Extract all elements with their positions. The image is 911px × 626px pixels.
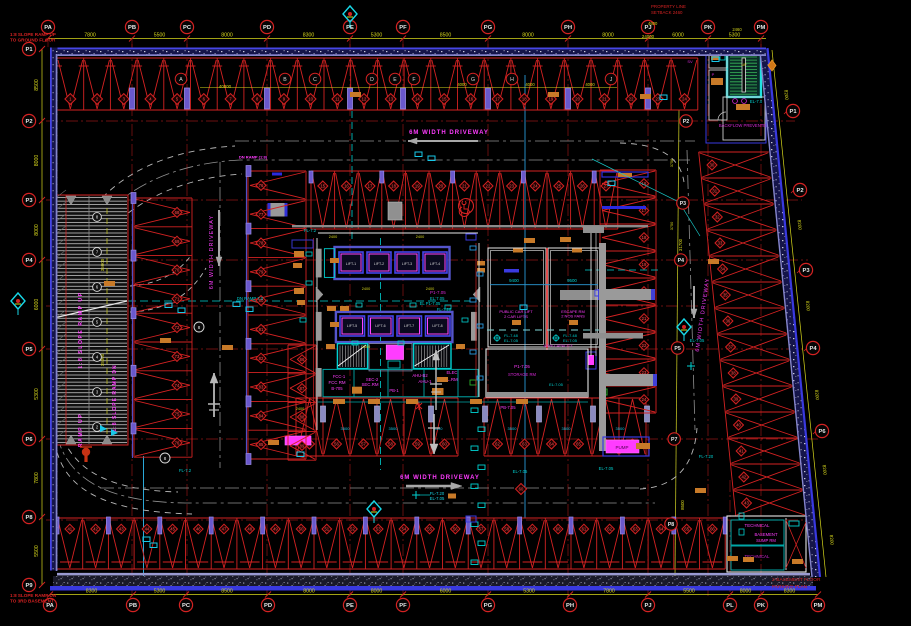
svg-text:8000: 8000 xyxy=(303,589,315,595)
svg-text:41: 41 xyxy=(739,449,744,454)
svg-text:1:8 SLOPE RAMP UP: 1:8 SLOPE RAMP UP xyxy=(10,32,56,37)
svg-text:77: 77 xyxy=(259,212,264,217)
svg-text:ELEC: ELEC xyxy=(447,370,458,375)
svg-text:48: 48 xyxy=(247,527,252,532)
svg-text:2400: 2400 xyxy=(426,287,434,291)
svg-text:PA: PA xyxy=(46,603,54,609)
svg-text:8300: 8300 xyxy=(303,33,315,39)
svg-text:SEC-2: SEC-2 xyxy=(366,377,379,382)
svg-text:BASEMENT: BASEMENT xyxy=(754,532,777,537)
svg-text:30: 30 xyxy=(710,163,715,168)
svg-text:8200: 8200 xyxy=(829,535,835,546)
svg-text:D: D xyxy=(370,77,374,83)
svg-text:45: 45 xyxy=(170,527,175,532)
svg-text:P6: P6 xyxy=(818,429,826,435)
svg-text:5300: 5300 xyxy=(523,589,535,595)
svg-text:PC: PC xyxy=(182,603,191,609)
svg-text:83: 83 xyxy=(259,385,264,390)
svg-text:8000: 8000 xyxy=(602,33,614,39)
svg-text:5300: 5300 xyxy=(34,388,40,400)
svg-text:3500: 3500 xyxy=(341,426,351,431)
svg-text:35: 35 xyxy=(723,293,728,298)
svg-text:3500: 3500 xyxy=(508,426,518,431)
svg-text:70: 70 xyxy=(175,268,180,273)
svg-text:13: 13 xyxy=(388,97,393,102)
svg-text:LIFT-3: LIFT-3 xyxy=(402,262,412,266)
svg-text:P1-7.05: P1-7.05 xyxy=(514,364,530,369)
svg-text:50: 50 xyxy=(299,527,304,532)
svg-text:EL-7.05: EL-7.05 xyxy=(690,338,705,343)
svg-text:16: 16 xyxy=(468,97,473,102)
svg-text:63: 63 xyxy=(633,527,638,532)
svg-text:54: 54 xyxy=(402,527,407,532)
svg-text:PM: PM xyxy=(814,603,823,609)
svg-text:PH: PH xyxy=(566,603,574,609)
svg-text:21: 21 xyxy=(642,316,647,321)
svg-text:49: 49 xyxy=(273,527,278,532)
svg-text:78: 78 xyxy=(259,241,264,246)
svg-text:59: 59 xyxy=(530,527,535,532)
svg-text:8000: 8000 xyxy=(522,33,534,39)
svg-text:LIFT-5: LIFT-5 xyxy=(347,324,357,328)
svg-text:FL-7.2: FL-7.2 xyxy=(304,228,317,233)
svg-text:88: 88 xyxy=(300,415,305,420)
svg-text:A: A xyxy=(179,77,183,83)
svg-text:31: 31 xyxy=(712,189,717,194)
svg-text:P4: P4 xyxy=(25,258,33,264)
svg-text:P4: P4 xyxy=(809,346,817,352)
svg-text:7800: 7800 xyxy=(84,33,96,39)
svg-text:PG: PG xyxy=(484,25,493,31)
svg-text:SETBACK 2460: SETBACK 2460 xyxy=(651,10,683,15)
svg-text:2400: 2400 xyxy=(329,235,337,239)
svg-text:9400: 9400 xyxy=(509,278,519,283)
svg-text:SUMP RM: SUMP RM xyxy=(756,538,776,543)
svg-text:5300: 5300 xyxy=(154,589,166,595)
svg-text:H: H xyxy=(510,77,514,83)
svg-text:16: 16 xyxy=(344,184,349,189)
svg-text:PD: PD xyxy=(264,603,272,609)
svg-text:EL-7.0: EL-7.0 xyxy=(750,99,763,104)
svg-text:PB: PB xyxy=(128,25,136,31)
svg-text:UP: UP xyxy=(742,63,748,67)
svg-text:64: 64 xyxy=(659,527,664,532)
svg-text:P5: P5 xyxy=(674,346,680,352)
svg-text:56: 56 xyxy=(453,527,458,532)
svg-text:34: 34 xyxy=(720,267,725,272)
svg-text:8500: 8500 xyxy=(680,500,685,510)
svg-text:62: 62 xyxy=(607,527,612,532)
svg-text:40000: 40000 xyxy=(219,84,232,89)
svg-text:25: 25 xyxy=(556,184,561,189)
svg-text:7800: 7800 xyxy=(34,472,40,484)
svg-text:1:8 SLOPE RAMP DN: 1:8 SLOPE RAMP DN xyxy=(112,364,118,431)
svg-text:89: 89 xyxy=(300,443,305,448)
svg-text:40: 40 xyxy=(736,423,741,428)
svg-text:P1: P1 xyxy=(789,109,797,115)
svg-text:LIFT-1: LIFT-1 xyxy=(346,262,356,266)
svg-text:7800: 7800 xyxy=(603,589,615,595)
svg-text:PARKING PLAN: PARKING PLAN xyxy=(772,584,808,590)
svg-text:22: 22 xyxy=(629,97,634,102)
svg-text:PD: PD xyxy=(263,25,271,31)
svg-text:3500: 3500 xyxy=(562,426,572,431)
svg-text:12: 12 xyxy=(362,97,367,102)
svg-text:4000: 4000 xyxy=(585,82,595,87)
svg-text:37: 37 xyxy=(728,345,733,350)
svg-text:8000: 8000 xyxy=(34,224,40,236)
svg-text:LIFT-4: LIFT-4 xyxy=(430,262,440,266)
svg-text:2 NOS FANS: 2 NOS FANS xyxy=(561,314,585,319)
svg-text:24000: 24000 xyxy=(642,34,655,39)
svg-text:86: 86 xyxy=(300,357,305,362)
svg-text:22: 22 xyxy=(642,343,647,348)
svg-text:56: 56 xyxy=(334,442,339,447)
svg-text:19: 19 xyxy=(415,184,420,189)
svg-text:G: G xyxy=(471,77,475,83)
svg-text:53: 53 xyxy=(376,527,381,532)
svg-text:8200: 8200 xyxy=(797,220,803,231)
svg-text:FL-7.20: FL-7.20 xyxy=(437,307,452,312)
svg-text:P2: P2 xyxy=(25,119,32,125)
svg-text:8200: 8200 xyxy=(783,90,789,101)
svg-text:SV: SV xyxy=(687,59,693,64)
svg-text:38: 38 xyxy=(731,371,736,376)
svg-text:44: 44 xyxy=(145,527,150,532)
svg-text:P3: P3 xyxy=(25,198,33,204)
svg-text:15: 15 xyxy=(442,97,447,102)
svg-text:LIFT-2: LIFT-2 xyxy=(374,262,384,266)
svg-text:FCC-1: FCC-1 xyxy=(333,374,346,379)
svg-text:43: 43 xyxy=(119,527,124,532)
svg-text:17: 17 xyxy=(495,97,500,102)
svg-text:P9: P9 xyxy=(25,583,33,589)
svg-text:60: 60 xyxy=(556,527,561,532)
svg-text:PB-1: PB-1 xyxy=(389,388,399,393)
svg-text:PB: PB xyxy=(129,603,137,609)
svg-text:EL-7.05: EL-7.05 xyxy=(513,469,528,474)
svg-text:58: 58 xyxy=(388,442,393,447)
svg-text:P: P xyxy=(712,72,715,77)
svg-text:DN RAMP 7.0: DN RAMP 7.0 xyxy=(237,296,264,301)
svg-text:14: 14 xyxy=(415,97,420,102)
svg-text:73: 73 xyxy=(175,354,180,359)
svg-text:4600: 4600 xyxy=(648,21,658,26)
svg-text:2400: 2400 xyxy=(296,407,304,411)
svg-text:TO GROUND FLOOR: TO GROUND FLOOR xyxy=(10,38,56,43)
svg-text:71: 71 xyxy=(175,296,180,301)
svg-text:B: B xyxy=(283,77,287,83)
svg-text:10: 10 xyxy=(308,97,313,102)
svg-text:57: 57 xyxy=(361,442,366,447)
svg-text:AHU-B2: AHU-B2 xyxy=(412,373,428,378)
svg-text:4000: 4000 xyxy=(525,82,535,87)
svg-text:24: 24 xyxy=(533,184,538,189)
svg-text:8500: 8500 xyxy=(221,589,233,595)
svg-text:42: 42 xyxy=(93,527,98,532)
svg-text:63: 63 xyxy=(522,442,527,447)
svg-text:17: 17 xyxy=(368,184,373,189)
svg-text:43: 43 xyxy=(744,501,749,506)
svg-text:3750: 3750 xyxy=(670,222,674,230)
svg-text:68: 68 xyxy=(175,210,180,215)
svg-text:2460: 2460 xyxy=(732,27,742,32)
svg-text:LIFT-7: LIFT-7 xyxy=(404,324,414,328)
svg-text:FCC RM: FCC RM xyxy=(328,380,345,385)
svg-text:18: 18 xyxy=(642,235,647,240)
svg-text:PC: PC xyxy=(183,25,192,31)
svg-text:TECHNICAL: TECHNICAL xyxy=(745,523,770,528)
svg-text:PK: PK xyxy=(757,603,766,609)
svg-text:BACKFLOW PREVENTER: BACKFLOW PREVENTER xyxy=(719,123,769,128)
svg-text:P3: P3 xyxy=(680,201,686,207)
svg-text:5500: 5500 xyxy=(683,589,695,595)
svg-text:65: 65 xyxy=(684,527,689,532)
svg-text:19: 19 xyxy=(549,97,554,102)
svg-text:PL: PL xyxy=(726,603,734,609)
svg-text:P7: P7 xyxy=(671,437,677,443)
svg-text:6000: 6000 xyxy=(34,299,40,311)
svg-text:15: 15 xyxy=(320,184,325,189)
svg-text:RAMP UP: RAMP UP xyxy=(78,413,84,447)
svg-text:SEC.RM: SEC.RM xyxy=(361,382,378,387)
svg-text:51: 51 xyxy=(324,527,329,532)
svg-text:LIFT-6: LIFT-6 xyxy=(375,324,385,328)
svg-text:C: C xyxy=(313,77,317,83)
svg-text:FL-7.20: FL-7.20 xyxy=(699,454,714,459)
svg-text:P4: P4 xyxy=(678,258,684,264)
svg-text:60: 60 xyxy=(519,487,524,492)
svg-text:22: 22 xyxy=(486,184,491,189)
svg-text:FL-7.2: FL-7.2 xyxy=(179,468,192,473)
svg-text:PM: PM xyxy=(757,25,766,31)
svg-text:PE: PE xyxy=(346,603,354,609)
svg-text:58: 58 xyxy=(504,527,509,532)
svg-text:EL P1-7.05: EL P1-7.05 xyxy=(420,301,441,306)
svg-text:24: 24 xyxy=(682,97,687,102)
svg-text:3750: 3750 xyxy=(670,159,674,167)
svg-text:55: 55 xyxy=(427,527,432,532)
svg-text:EL-7.05: EL-7.05 xyxy=(563,338,578,343)
svg-text:5500: 5500 xyxy=(34,545,40,557)
svg-text:47: 47 xyxy=(222,527,227,532)
svg-text:87: 87 xyxy=(300,386,305,391)
svg-text:6M WIDTH DRIVEWAY: 6M WIDTH DRIVEWAY xyxy=(400,475,480,481)
svg-text:20: 20 xyxy=(438,184,443,189)
svg-text:PF: PF xyxy=(399,603,407,609)
svg-text:1:8 SLOPE RAMP UP: 1:8 SLOPE RAMP UP xyxy=(78,291,84,368)
svg-text:79: 79 xyxy=(259,269,264,274)
svg-text:64: 64 xyxy=(549,442,554,447)
svg-text:59: 59 xyxy=(415,442,420,447)
svg-text:19: 19 xyxy=(642,262,647,267)
svg-text:DN RAMP (1:8): DN RAMP (1:8) xyxy=(239,155,268,160)
svg-text:AHU-1: AHU-1 xyxy=(418,379,432,384)
svg-text:PJ: PJ xyxy=(644,603,651,609)
svg-text:33: 33 xyxy=(718,241,723,246)
svg-text:6M WIDTH DRIVEWAY: 6M WIDTH DRIVEWAY xyxy=(209,215,215,289)
svg-text:PA: PA xyxy=(44,25,52,31)
svg-text:65: 65 xyxy=(576,442,581,447)
svg-text:60: 60 xyxy=(442,442,447,447)
svg-text:8300: 8300 xyxy=(86,589,98,595)
svg-text:6000: 6000 xyxy=(672,33,684,39)
svg-text:5300: 5300 xyxy=(371,33,383,39)
svg-text:3500: 3500 xyxy=(616,426,626,431)
svg-text:26: 26 xyxy=(580,184,585,189)
svg-text:81: 81 xyxy=(259,327,264,332)
svg-text:4000: 4000 xyxy=(457,82,467,87)
svg-text:PF: PF xyxy=(399,25,407,31)
svg-text:23: 23 xyxy=(509,184,514,189)
svg-text:PUMP: PUMP xyxy=(615,445,628,450)
svg-text:2400: 2400 xyxy=(362,345,370,349)
svg-text:B-705: B-705 xyxy=(331,386,343,391)
svg-text:PJ: PJ xyxy=(644,25,651,31)
svg-text:2400: 2400 xyxy=(416,235,424,239)
svg-text:62: 62 xyxy=(495,442,500,447)
svg-text:P2: P2 xyxy=(796,188,803,194)
svg-text:P5: P5 xyxy=(25,347,33,353)
svg-text:9500: 9500 xyxy=(567,278,577,283)
svg-text:72: 72 xyxy=(175,325,180,330)
svg-text:P6: P6 xyxy=(25,437,33,443)
svg-text:P2: P2 xyxy=(683,119,689,125)
svg-text:84: 84 xyxy=(259,413,264,418)
svg-text:20: 20 xyxy=(575,97,580,102)
svg-text:PG: PG xyxy=(484,603,493,609)
svg-text:52: 52 xyxy=(350,527,355,532)
svg-text:LIFT-8: LIFT-8 xyxy=(432,324,442,328)
svg-text:8200: 8200 xyxy=(805,301,811,312)
svg-text:2-BASEMENT FLOOR: 2-BASEMENT FLOOR xyxy=(772,577,821,583)
svg-text:P8: P8 xyxy=(25,515,33,521)
svg-text:42: 42 xyxy=(741,475,746,480)
svg-text:46: 46 xyxy=(196,527,201,532)
svg-text:F: F xyxy=(412,77,415,83)
svg-text:P8: P8 xyxy=(668,522,674,528)
svg-text:5300: 5300 xyxy=(729,33,741,39)
svg-text:76: 76 xyxy=(175,440,180,445)
svg-text:STORAGE RM: STORAGE RM xyxy=(508,372,537,377)
svg-text:EL:7.05: EL:7.05 xyxy=(549,382,564,387)
svg-text:18: 18 xyxy=(522,97,527,102)
svg-text:8000: 8000 xyxy=(371,589,383,595)
svg-text:69: 69 xyxy=(175,239,180,244)
svg-text:85: 85 xyxy=(259,442,264,447)
svg-text:24: 24 xyxy=(642,397,647,402)
svg-text:2 CAR LIFTS: 2 CAR LIFTS xyxy=(504,314,528,319)
svg-text:8500: 8500 xyxy=(34,79,40,91)
svg-text:57: 57 xyxy=(479,527,484,532)
svg-text:61: 61 xyxy=(582,527,587,532)
svg-text:82: 82 xyxy=(259,356,264,361)
svg-text:P1: P1 xyxy=(25,47,33,53)
svg-text:8500: 8500 xyxy=(440,33,452,39)
svg-text:39: 39 xyxy=(734,397,739,402)
svg-text:11: 11 xyxy=(335,97,340,102)
svg-text:EL-7.05: EL-7.05 xyxy=(430,496,445,501)
svg-text:PH: PH xyxy=(564,25,572,31)
svg-text:66: 66 xyxy=(710,527,715,532)
svg-text:35000: 35000 xyxy=(100,258,105,271)
svg-text:J: J xyxy=(610,77,613,83)
svg-text:8000: 8000 xyxy=(34,155,40,167)
svg-text:75: 75 xyxy=(175,412,180,417)
svg-text:TO 3RD BASEMENT: TO 3RD BASEMENT xyxy=(10,599,54,604)
svg-text:8200: 8200 xyxy=(822,465,828,476)
svg-text:2400: 2400 xyxy=(362,287,370,291)
svg-text:31700: 31700 xyxy=(678,238,683,251)
svg-text:100% CAPACITY: 100% CAPACITY xyxy=(543,344,573,348)
svg-text:EL-7.05: EL-7.05 xyxy=(599,466,614,471)
svg-text:EL-7.05: EL-7.05 xyxy=(504,338,519,343)
svg-text:76: 76 xyxy=(259,183,264,188)
svg-text:5500: 5500 xyxy=(154,33,166,39)
svg-text:PK: PK xyxy=(704,25,713,31)
svg-text:36: 36 xyxy=(726,319,731,324)
svg-text:74: 74 xyxy=(175,383,180,388)
svg-text:6000: 6000 xyxy=(440,589,452,595)
svg-text:E: E xyxy=(393,77,397,83)
svg-text:18: 18 xyxy=(391,184,396,189)
svg-text:8000: 8000 xyxy=(221,33,233,39)
svg-text:8200: 8200 xyxy=(814,390,820,401)
svg-text:PROPERTY LINE: PROPERTY LINE xyxy=(651,4,686,9)
svg-text:21: 21 xyxy=(462,184,467,189)
svg-text:21: 21 xyxy=(602,97,607,102)
svg-text:6M WIDTH DRIVEWAY: 6M WIDTH DRIVEWAY xyxy=(409,130,489,136)
svg-text:41: 41 xyxy=(67,527,72,532)
svg-text:32: 32 xyxy=(715,215,720,220)
svg-text:8000: 8000 xyxy=(740,589,752,595)
svg-text:P3: P3 xyxy=(802,268,810,274)
svg-text:3500: 3500 xyxy=(389,426,399,431)
svg-text:1:8 SLOPE RAMP DN: 1:8 SLOPE RAMP DN xyxy=(10,593,57,598)
svg-text:PB-7.05: PB-7.05 xyxy=(500,405,516,410)
